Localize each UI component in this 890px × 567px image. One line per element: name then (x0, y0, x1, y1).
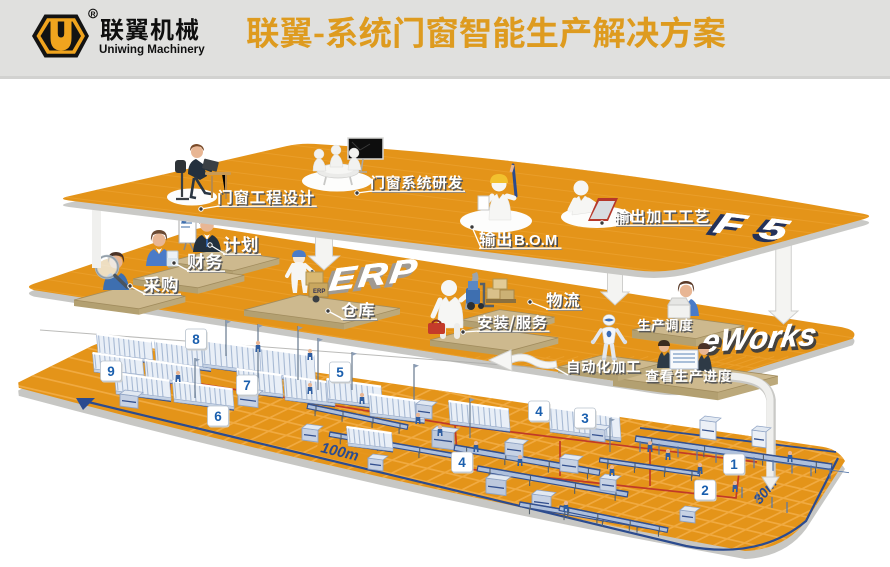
svg-text:6: 6 (214, 409, 222, 424)
svg-text:eWorks: eWorks (700, 317, 819, 359)
svg-text:Uniwing Machinery: Uniwing Machinery (99, 43, 205, 56)
svg-text:B.O.M: B.O.M (514, 232, 557, 249)
svg-text:3: 3 (581, 411, 589, 426)
svg-text:5: 5 (336, 365, 344, 380)
svg-text:4: 4 (535, 404, 543, 419)
svg-text:8: 8 (192, 332, 200, 347)
svg-text:9: 9 (107, 364, 115, 379)
svg-text:1: 1 (730, 457, 738, 472)
svg-text:7: 7 (243, 378, 251, 393)
svg-text:4: 4 (458, 455, 466, 470)
svg-text:ERP: ERP (313, 289, 325, 295)
svg-text:2: 2 (701, 483, 709, 498)
svg-text:R: R (90, 11, 95, 18)
